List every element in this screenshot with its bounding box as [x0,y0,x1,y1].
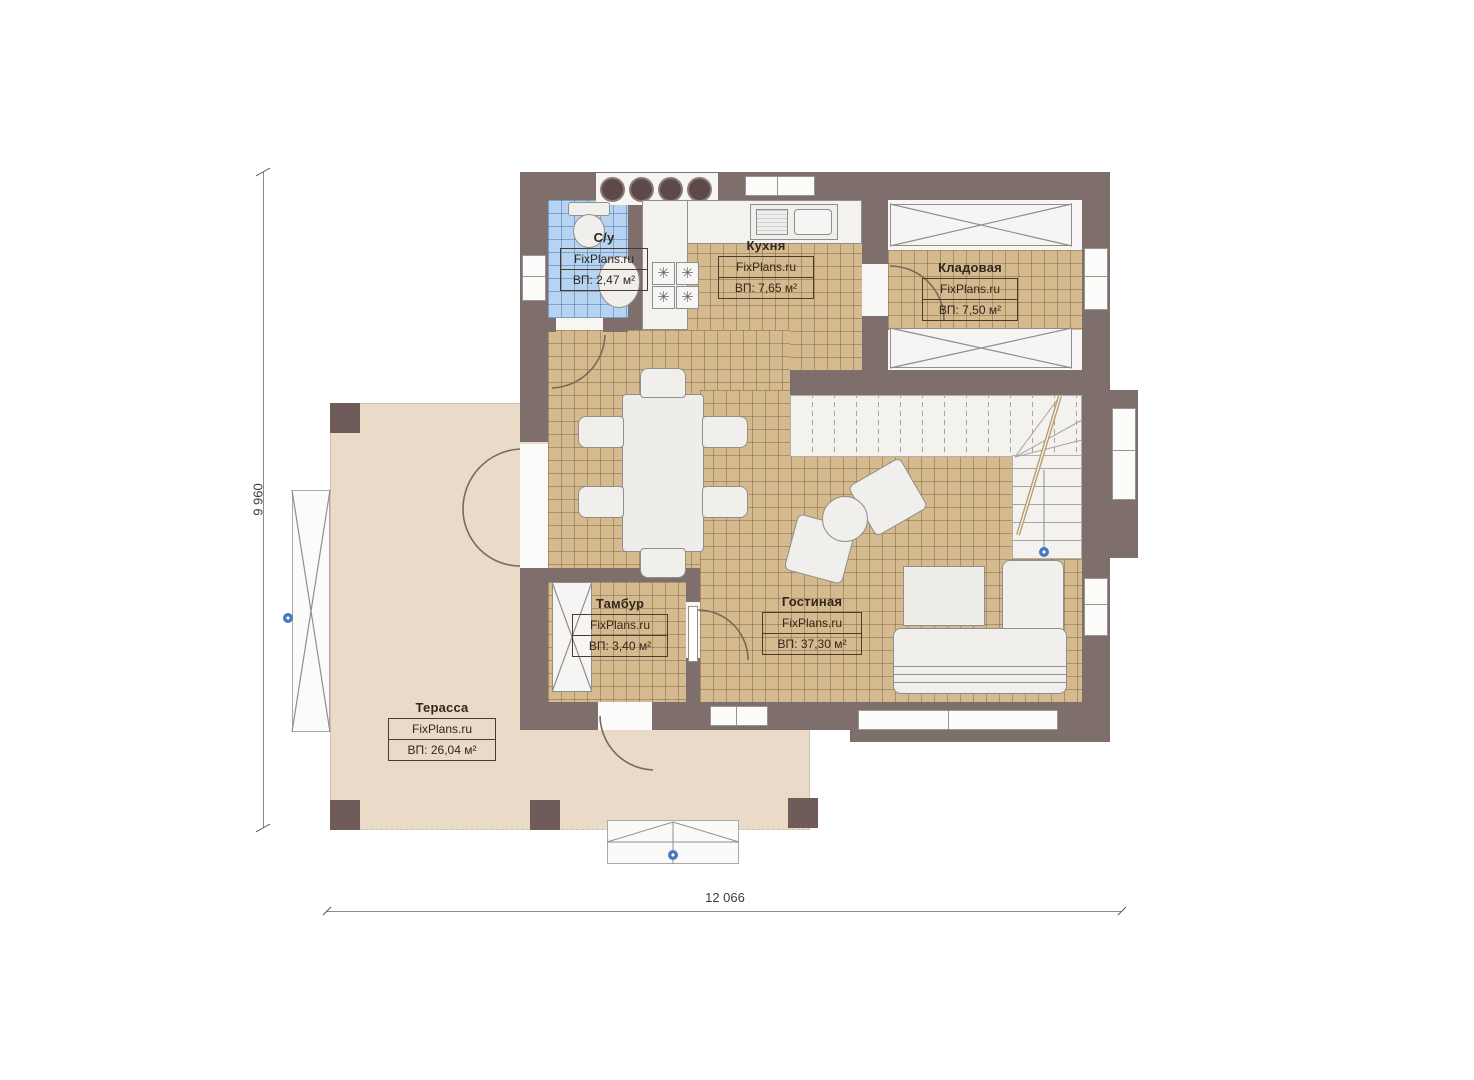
room-brand: FixPlans.ru [763,613,861,633]
terrace-post [788,798,818,828]
stairs-upper-flight [790,395,1082,457]
room-area: ВП: 3,40 м² [573,635,667,656]
storage-shelf-bottom [890,328,1072,368]
room-name: Терасса [388,700,496,715]
flue-circle [687,177,712,202]
window-top [745,176,815,196]
wall-bathroom-bottom-r [603,318,628,332]
room-label-bathroom: С/у FixPlans.ru ВП: 2,47 м² [560,230,648,291]
width-value: 12 066 [705,890,745,905]
level-marker [1039,547,1049,557]
hob-burner: ✳ [652,262,675,285]
height-value: 9 960 [251,483,266,516]
room-info-box: FixPlans.ru ВП: 37,30 м² [762,612,862,655]
room-area: ВП: 37,30 м² [763,633,861,654]
flue-circle [600,177,625,202]
wall-tambour-right-bottom [686,658,700,702]
terrace-post [330,800,360,830]
window-left [522,255,546,301]
horizontal-dimension-label: 12 066 [650,890,800,905]
hob-burner-glyph: ✳ [657,289,670,306]
room-label-living: Гостиная FixPlans.ru ВП: 37,30 м² [762,594,862,655]
dining-table [622,394,704,552]
room-name: Кладовая [922,260,1018,275]
room-brand: FixPlans.ru [389,719,495,739]
room-info-box: FixPlans.ru ВП: 2,47 м² [560,248,648,291]
level-marker [668,850,678,860]
room-name: С/у [560,230,648,245]
coffee-table [903,566,985,626]
window-right-storage [1084,248,1108,310]
room-name: Тамбур [572,596,668,611]
room-area: ВП: 2,47 м² [561,269,647,290]
dining-chair [640,548,686,578]
room-area: ВП: 7,65 м² [719,277,813,298]
wall-bathroom-bottom-l [548,318,556,332]
room-info-box: FixPlans.ru ВП: 7,65 м² [718,256,814,299]
terrace-post [330,403,360,433]
room-area: ВП: 26,04 м² [389,739,495,760]
room-label-kitchen: Кухня FixPlans.ru ВП: 7,65 м² [718,238,814,299]
dining-chair [702,416,748,448]
wall-storage-left-top [862,200,888,264]
storage-shelf-top [890,204,1072,246]
room-info-box: FixPlans.ru ВП: 3,40 м² [572,614,668,657]
wall-tambour-right-top [686,568,700,602]
wall-left-lower [520,568,548,702]
room-info-box: FixPlans.ru ВП: 26,04 м² [388,718,496,761]
wall-bottom-step [850,728,1110,742]
stairs-lower-flight [1012,455,1082,559]
hob-burner-glyph: ✳ [681,289,694,306]
flue-circle [629,177,654,202]
dining-chair [702,486,748,518]
wall-left-upper [520,200,548,442]
room-name: Гостиная [762,594,862,609]
wall-storage-left-bottom [862,316,888,372]
hob-burner: ✳ [676,262,699,285]
hob-burner-glyph: ✳ [657,265,670,282]
room-label-tambour: Тамбур FixPlans.ru ВП: 3,40 м² [572,596,668,657]
hob-burner-glyph: ✳ [681,265,694,282]
window-bottom-small [710,706,768,726]
window-right-living [1084,578,1108,636]
room-info-box: FixPlans.ru ВП: 7,50 м² [922,278,1018,321]
tambour-door-leaf [688,606,698,662]
dining-chair [640,368,686,398]
room-brand: FixPlans.ru [573,615,667,635]
kitchen-sink-basin [756,209,788,235]
room-label-terrace: Терасса FixPlans.ru ВП: 26,04 м² [388,700,496,761]
vertical-dimension-label: 9 960 [251,445,266,555]
terrace-side-rail [292,490,330,732]
hob-burner: ✳ [676,286,699,309]
room-label-storage: Кладовая FixPlans.ru ВП: 7,50 м² [922,260,1018,321]
room-area: ВП: 7,50 м² [923,299,1017,320]
sofa-base [893,628,1067,694]
door-opening-entry [598,702,652,730]
flue-circle [658,177,683,202]
room-brand: FixPlans.ru [719,257,813,277]
level-marker [283,613,293,623]
horizontal-dimension-line [327,911,1122,912]
room-brand: FixPlans.ru [923,279,1017,299]
door-opening-french [520,444,548,568]
hob-burner: ✳ [652,286,675,309]
wall-stairs-top [790,370,1110,395]
terrace-post [530,800,560,830]
side-table-round [822,496,868,542]
dining-chair [578,486,624,518]
room-name: Кухня [718,238,814,253]
dining-chair [578,416,624,448]
room-brand: FixPlans.ru [561,249,647,269]
window-bottom-living [858,710,1058,730]
window-stair-bay [1112,408,1136,500]
floor-plan-canvas: 9 960 12 066 [0,0,1474,1080]
kitchen-sink-basin [794,209,832,235]
